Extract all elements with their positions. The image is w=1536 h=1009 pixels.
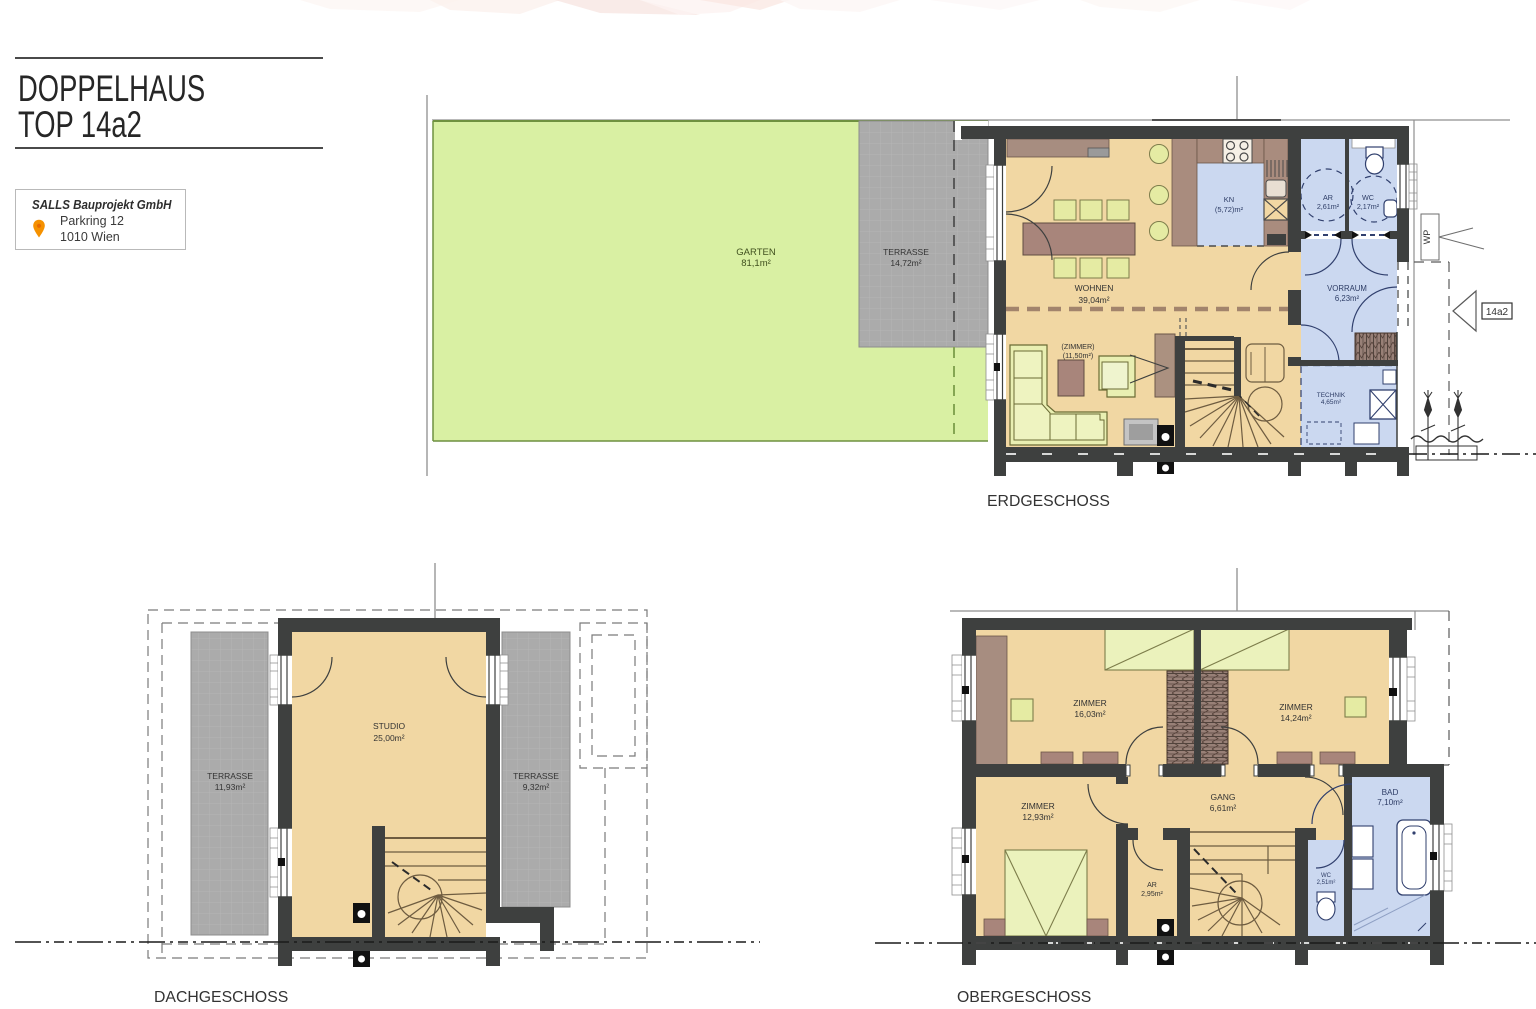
svg-text:14,24m²: 14,24m²: [1280, 713, 1311, 723]
svg-text:ZIMMER: ZIMMER: [1021, 801, 1055, 811]
svg-text:14,72m²: 14,72m²: [890, 258, 921, 268]
svg-text:WP: WP: [1422, 230, 1432, 245]
svg-text:(ZIMMER): (ZIMMER): [1061, 342, 1094, 351]
svg-text:GARTEN: GARTEN: [736, 247, 776, 258]
svg-text:(5,72)m²: (5,72)m²: [1215, 205, 1244, 214]
svg-text:WC: WC: [1321, 873, 1332, 879]
svg-text:ZIMMER: ZIMMER: [1279, 702, 1313, 712]
svg-text:ZIMMER: ZIMMER: [1073, 698, 1107, 708]
svg-text:16,03m²: 16,03m²: [1074, 709, 1105, 719]
svg-text:TERRASSE: TERRASSE: [883, 247, 929, 257]
svg-text:2,51m²: 2,51m²: [1317, 880, 1336, 886]
svg-text:7,10m²: 7,10m²: [1377, 798, 1403, 807]
svg-text:(11,50m²): (11,50m²): [1063, 351, 1094, 360]
svg-text:6,23m²: 6,23m²: [1335, 294, 1360, 303]
svg-text:VORRAUM: VORRAUM: [1327, 284, 1367, 293]
svg-text:2,95m²: 2,95m²: [1141, 891, 1163, 898]
svg-text:GANG: GANG: [1210, 792, 1235, 802]
svg-text:14a2: 14a2: [1486, 307, 1509, 318]
svg-text:4,65m²: 4,65m²: [1321, 399, 1342, 406]
svg-text:39,04m²: 39,04m²: [1078, 295, 1109, 305]
svg-text:81,1m²: 81,1m²: [741, 258, 771, 269]
svg-text:11,93m²: 11,93m²: [215, 782, 246, 792]
svg-text:2,17m²: 2,17m²: [1357, 202, 1380, 211]
svg-text:6,61m²: 6,61m²: [1210, 803, 1237, 813]
svg-text:AR: AR: [1147, 882, 1157, 889]
svg-text:KN: KN: [1224, 195, 1234, 204]
svg-text:2,61m²: 2,61m²: [1317, 202, 1340, 211]
svg-text:TECHNIK: TECHNIK: [1317, 392, 1346, 399]
svg-text:BAD: BAD: [1382, 788, 1399, 797]
svg-text:9,32m²: 9,32m²: [523, 782, 550, 792]
svg-text:DACHGESCHOSS: DACHGESCHOSS: [154, 989, 288, 1006]
svg-text:12,93m²: 12,93m²: [1022, 812, 1053, 822]
svg-text:WC: WC: [1362, 193, 1374, 202]
svg-text:WOHNEN: WOHNEN: [1075, 283, 1114, 293]
svg-text:AR: AR: [1323, 193, 1333, 202]
svg-text:TERRASSE: TERRASSE: [207, 771, 253, 781]
svg-text:OBERGESCHOSS: OBERGESCHOSS: [957, 989, 1091, 1006]
svg-text:25,00m²: 25,00m²: [373, 733, 404, 743]
svg-text:ERDGESCHOSS: ERDGESCHOSS: [987, 493, 1110, 510]
svg-text:STUDIO: STUDIO: [373, 721, 406, 731]
svg-text:TERRASSE: TERRASSE: [513, 771, 559, 781]
